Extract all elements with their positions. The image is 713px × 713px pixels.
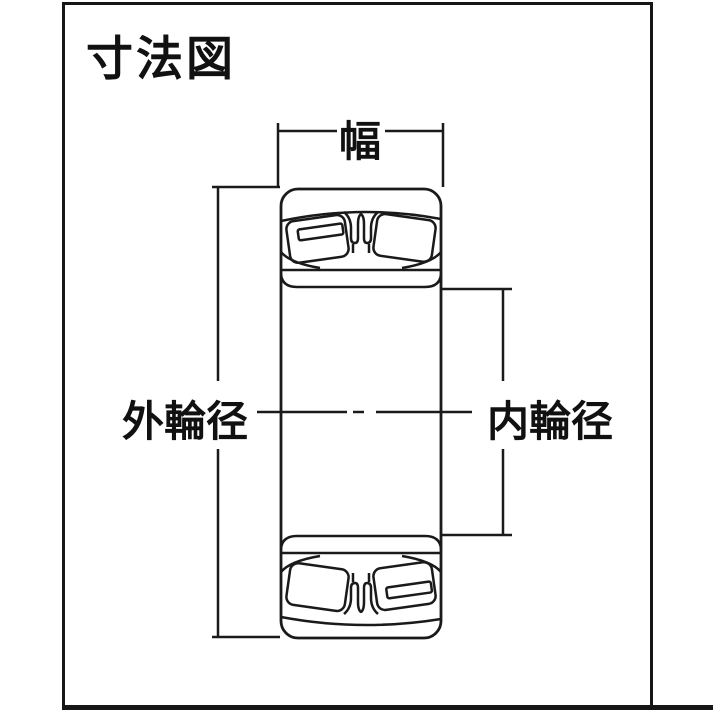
width-label: 幅: [339, 108, 381, 169]
roller-bottom-left: [285, 562, 349, 612]
inner-ring-diameter-label: 内輪径: [487, 388, 613, 449]
drawing-strokes: [212, 123, 512, 638]
roller-top-right: [372, 213, 436, 263]
outer-ring-diameter-label: 外輪径: [122, 388, 248, 449]
figure-title: 寸法図: [86, 20, 236, 89]
bearing-drawing: [0, 0, 713, 713]
